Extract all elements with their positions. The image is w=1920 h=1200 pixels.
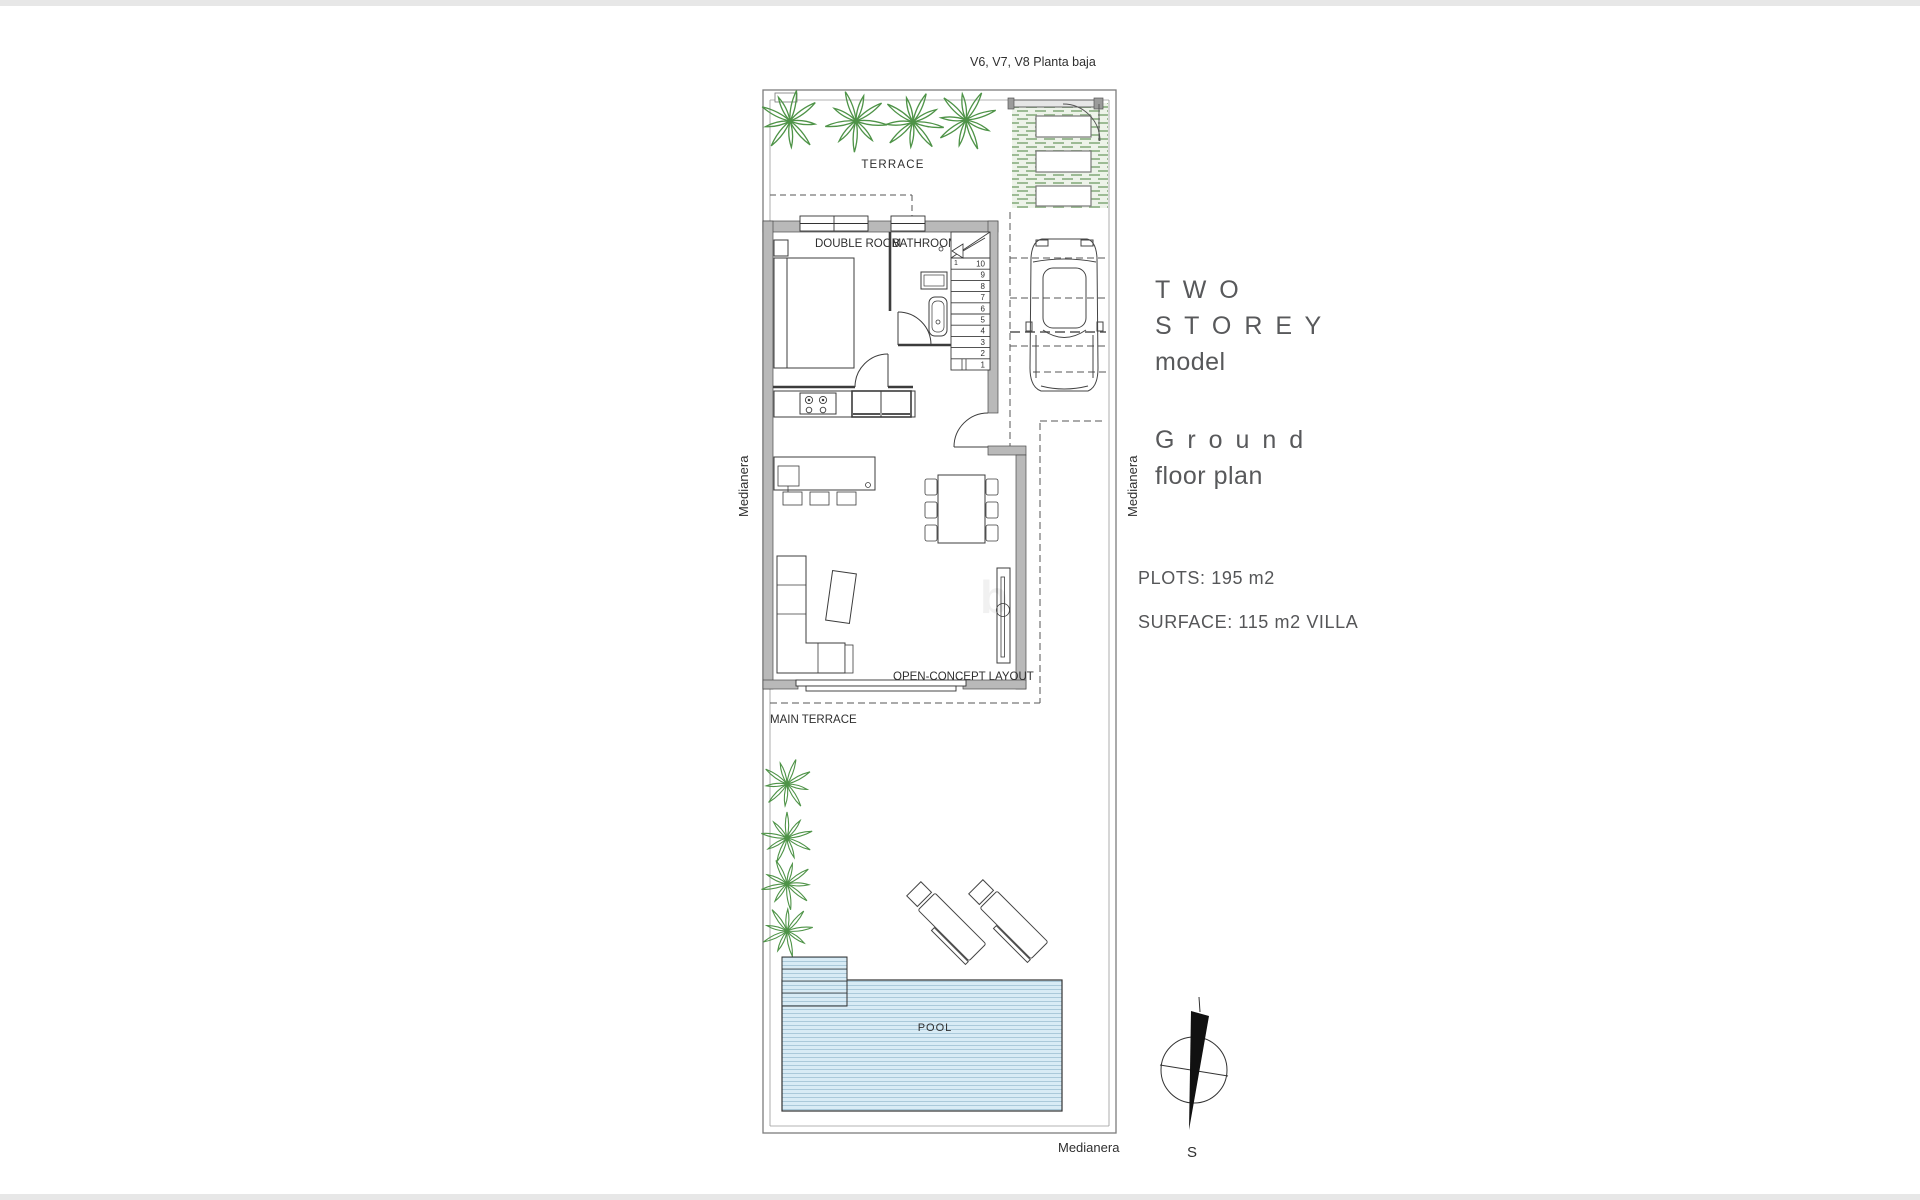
paver-pad — [1036, 151, 1091, 172]
compass-needle-icon — [1189, 1011, 1209, 1130]
paver-pad — [1036, 186, 1091, 206]
bathroom-door-arc — [898, 312, 931, 345]
palm-tree-icon — [757, 807, 818, 865]
stair-step-number: 4 — [981, 327, 986, 336]
plan-title-line2: floor plan — [1155, 458, 1306, 494]
stove — [800, 393, 836, 414]
party-wall-left — [763, 221, 773, 689]
coffee-table — [826, 571, 857, 624]
island-sink — [778, 466, 799, 486]
bottom-letterbox-bar — [0, 1194, 1920, 1200]
label-double-room: DOUBLE ROOM — [815, 238, 901, 250]
label-medianera-right: Medianera — [1125, 455, 1140, 517]
plots-spec: PLOTS: 195 m2 — [1138, 568, 1275, 589]
model-title-line2: S T O R E Y — [1155, 308, 1324, 344]
bathroom-sink — [921, 272, 947, 289]
model-title-line1: T W O — [1155, 272, 1324, 308]
driveway-green-zone — [1008, 98, 1108, 208]
pool-steps — [782, 957, 847, 1006]
front-door-arc — [954, 413, 988, 447]
sliding-door-leaf — [806, 686, 956, 691]
palm-tree-icon — [880, 87, 949, 153]
watermark: b — [980, 570, 1016, 624]
label-pool: POOL — [918, 1022, 953, 1034]
entrance — [954, 413, 988, 447]
top-letterbox-bar — [0, 0, 1920, 6]
plan-title-block: G r o u n d floor plan — [1155, 422, 1306, 494]
palm-tree-icon — [752, 895, 820, 964]
stool — [837, 492, 856, 505]
kitchen — [774, 391, 915, 505]
car — [1026, 239, 1103, 391]
plan-title-line1: G r o u n d — [1155, 422, 1306, 458]
bedroom-door-arc — [855, 354, 888, 387]
dining-area — [925, 475, 998, 543]
palm-tree-icon — [755, 849, 824, 917]
stair-step-number: 9 — [981, 271, 986, 280]
chair — [986, 502, 998, 518]
chair — [925, 502, 937, 518]
label-main-terrace: MAIN TERRACE — [770, 714, 857, 726]
stair-step-number: 2 — [981, 349, 986, 358]
stair-step-number: 3 — [981, 338, 986, 347]
compass: S — [1160, 997, 1228, 1161]
nightstand — [774, 240, 788, 256]
dining-table — [938, 475, 985, 543]
chair — [925, 479, 937, 495]
bed — [774, 258, 854, 368]
model-title-block: T W O S T O R E Y model — [1155, 272, 1324, 380]
stool — [783, 492, 802, 505]
paver-pad — [1036, 116, 1091, 137]
stair-step-number: 7 — [981, 293, 986, 302]
floor-plan-svg: V6, V7, V8 Planta baja TERRACE — [0, 0, 1920, 1200]
main-terrace-garden: MAIN TERRACE — [752, 714, 857, 963]
compass-south-label: S — [1187, 1144, 1197, 1161]
chair — [986, 479, 998, 495]
model-subtitle: model — [1155, 344, 1324, 380]
label-open-concept: OPEN-CONCEPT LAYOUT — [893, 671, 1034, 683]
windows — [796, 216, 966, 691]
stair-step-number: 1 — [981, 360, 986, 369]
stair-step-number: 5 — [981, 316, 986, 325]
floor-plan-page: V6, V7, V8 Planta baja TERRACE — [0, 0, 1920, 1200]
bedroom: DOUBLE ROOM — [773, 238, 913, 387]
stool — [810, 492, 829, 505]
label-bathroom: BATHROOM — [892, 238, 958, 250]
loungers — [902, 878, 1048, 964]
chair — [986, 525, 998, 541]
surface-spec: SURFACE: 115 m2 VILLA — [1138, 612, 1358, 633]
staircase: 1 10 9 8 7 6 5 4 3 2 1 — [951, 232, 990, 370]
label-medianera-bottom: Medianera — [1058, 1140, 1120, 1155]
stair-step-number: 8 — [981, 282, 986, 291]
stair-start-number: 1 — [954, 260, 958, 267]
sofa-armrest — [845, 645, 853, 673]
palm-tree-icon — [755, 751, 816, 814]
windshield — [1043, 330, 1086, 338]
label-terrace: TERRACE — [861, 159, 924, 171]
bathroom: BATHROOM — [890, 232, 958, 345]
label-medianera-left: Medianera — [736, 455, 751, 517]
stair-step-number: 6 — [981, 304, 986, 313]
stair-step-number: 10 — [976, 260, 985, 269]
plan-code-label: V6, V7, V8 Planta baja — [970, 55, 1096, 69]
pool-area: POOL — [782, 957, 1062, 1111]
chair — [925, 525, 937, 541]
side-mirror — [1026, 322, 1032, 331]
